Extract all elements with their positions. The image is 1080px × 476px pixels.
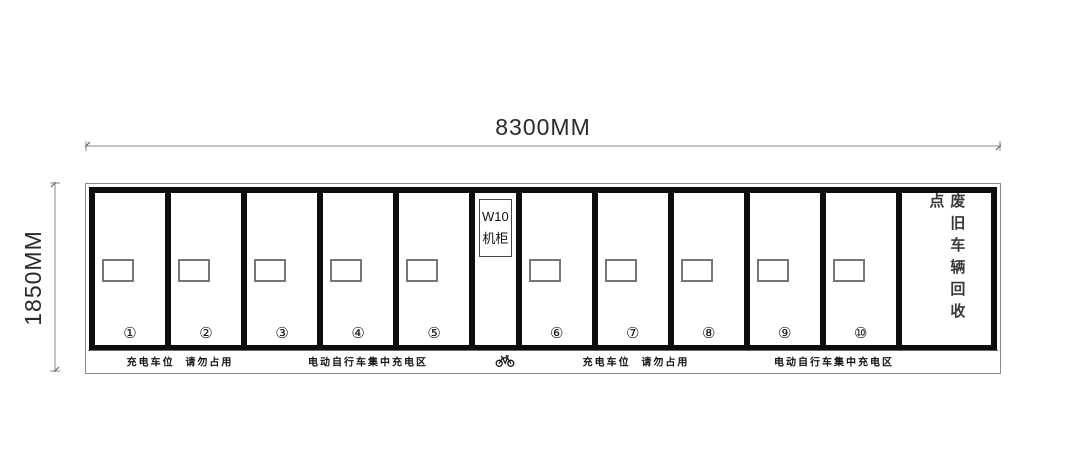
height-dimension-label: 1850MM (20, 198, 46, 358)
socket-outlet (102, 259, 134, 282)
charging-stall-1: ① (95, 193, 165, 345)
stall-number: ⑧ (674, 324, 744, 342)
stall-number: ⑦ (598, 324, 668, 342)
charging-stall-10: ⑩ (820, 193, 896, 345)
stall-number: ④ (323, 324, 393, 342)
stall-number: ⑨ (750, 324, 820, 342)
socket-outlet (833, 259, 865, 282)
socket-outlet (681, 259, 713, 282)
socket-outlet (757, 259, 789, 282)
socket-outlet (330, 259, 362, 282)
charging-stall-2: ② (165, 193, 241, 345)
socket-outlet (406, 259, 438, 282)
charging-stall-9: ⑨ (744, 193, 820, 345)
base-sign-text: 充电车位 请勿占用 (583, 354, 690, 369)
socket-outlet (529, 259, 561, 282)
charging-stall-5: ⑤ (393, 193, 469, 345)
cabinet-label-line2: 机柜 (480, 228, 511, 250)
w10-cabinet-column: W10 机柜 (469, 193, 516, 345)
stall-frame: ① ② ③ ④ ⑤ W10 机柜 (89, 187, 997, 351)
height-dimension-line (49, 182, 61, 372)
charging-station-unit: ① ② ③ ④ ⑤ W10 机柜 (85, 183, 1001, 374)
stall-number: ② (171, 324, 241, 342)
base-strip: 充电车位 请勿占用 电动自行车集中充电区 充电车位 请勿占用 电动自行车集中充电… (88, 350, 998, 371)
width-dimension-line (85, 140, 1001, 152)
charging-stall-7: ⑦ (592, 193, 668, 345)
width-dimension-label: 8300MM (85, 114, 1001, 141)
technical-drawing: 8300MM 1850MM ① ② ③ (0, 0, 1080, 476)
stall-number: ① (95, 324, 165, 342)
stall-number: ③ (247, 324, 317, 342)
charging-stall-8: ⑧ (668, 193, 744, 345)
stall-number: ⑥ (522, 324, 592, 342)
cabinet-label-box: W10 机柜 (479, 199, 512, 257)
base-sign-text: 电动自行车集中充电区 (774, 354, 894, 369)
stall-number: ⑩ (826, 324, 896, 342)
charging-stall-3: ③ (241, 193, 317, 345)
recycle-area-column: 废旧车辆回收点 (896, 193, 991, 345)
recycle-area-label: 废旧车辆回收点 (925, 193, 967, 345)
bicycle-icon (495, 355, 515, 368)
cabinet-label-line1: W10 (480, 206, 511, 228)
charging-stall-6: ⑥ (516, 193, 592, 345)
socket-outlet (605, 259, 637, 282)
stall-number: ⑤ (399, 324, 469, 342)
charging-stall-4: ④ (317, 193, 393, 345)
socket-outlet (178, 259, 210, 282)
base-sign-text: 充电车位 请勿占用 (127, 354, 234, 369)
base-sign-text: 电动自行车集中充电区 (308, 354, 428, 369)
socket-outlet (254, 259, 286, 282)
